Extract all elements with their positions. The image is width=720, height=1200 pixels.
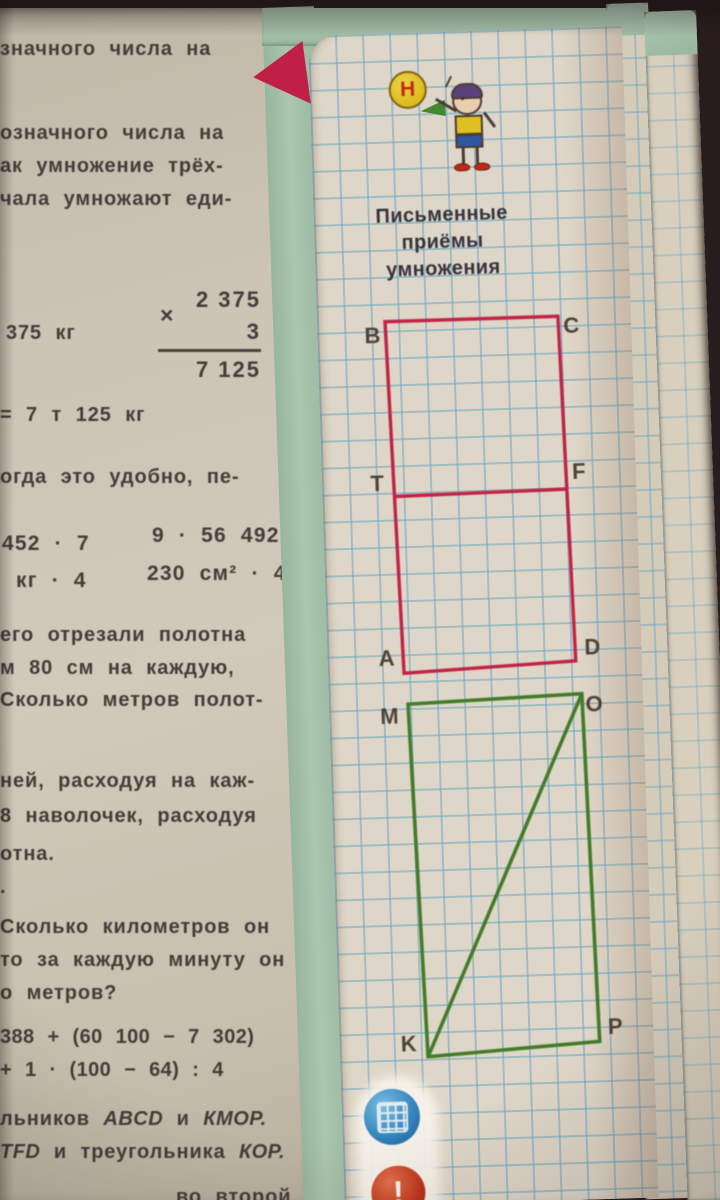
text-line: его отрезали полотна — [0, 624, 246, 647]
product: 7 125 — [185, 357, 261, 383]
text-line: значного числа на — [0, 38, 211, 61]
figure-reference-line: TFD и треугольника КОР. — [0, 1141, 285, 1164]
text-line: отна. — [0, 843, 55, 866]
exercise-expression: кг · 4 — [16, 569, 87, 593]
text-line: 375 кг — [6, 322, 76, 345]
geometry-figures — [308, 26, 659, 1200]
multiplication-rule — [158, 349, 261, 352]
red-segment-tf — [393, 489, 567, 496]
vertex-label-p: P — [608, 1014, 623, 1040]
vertex-label-d: D — [584, 634, 601, 660]
vertex-label-k: K — [400, 1031, 417, 1057]
vertex-label-f: F — [572, 459, 586, 485]
exercise-expression: 9 · 56 492 — [152, 524, 280, 548]
vertex-label-o: O — [585, 691, 603, 718]
vertex-label-b: B — [364, 323, 381, 349]
grid-glyph — [376, 1101, 408, 1133]
exercise-expression: 452 · 7 — [2, 532, 90, 556]
text-line: означного числа на — [0, 122, 224, 145]
alert-exclamation: ! — [393, 1177, 405, 1200]
text-line: то за каждую минуту он — [0, 949, 285, 972]
textbook-photo: значного числа на означного числа на ак … — [0, 0, 720, 1200]
text-line: ак умножение трёх- — [0, 155, 224, 178]
text-line: Сколько километров он — [0, 916, 270, 939]
text-line: чала умножают еди- — [0, 188, 232, 211]
text-line: огда это удобно, пе- — [0, 466, 239, 489]
figure-reference-line: льников ABCD и КМОР. — [0, 1108, 267, 1131]
multiplication-sign: × — [160, 302, 175, 329]
text-line: м 80 см на каждую, — [0, 657, 235, 680]
vertex-label-t: T — [370, 471, 384, 497]
green-diagonal-ok — [417, 694, 593, 1057]
vertex-label-c: C — [563, 313, 580, 339]
text-line: 8 наволочек, расходуя — [0, 805, 257, 828]
vertex-label-a: A — [378, 646, 395, 672]
text-line: ней, расходуя на каж- — [0, 770, 255, 793]
vertex-label-m: M — [380, 703, 399, 730]
multiplicand: 2 375 — [185, 287, 261, 313]
text-line: = 7 т 125 кг — [0, 404, 145, 427]
exercise-expression: 388 + (60 100 − 7 302) — [0, 1026, 254, 1049]
text-line: . — [0, 876, 6, 899]
exercise-expression: + 1 · (100 − 64) : 4 — [0, 1059, 224, 1082]
text-line: Сколько метров полот- — [0, 689, 263, 712]
multiplier: 3 — [185, 319, 261, 345]
squared-notebook-page: Н Письменные приёмы умножения — [308, 26, 659, 1200]
text-line: о метров? — [0, 982, 117, 1005]
stacked-page-tab — [644, 10, 698, 56]
exercise-expression: 230 см² · 4 — [147, 562, 287, 586]
